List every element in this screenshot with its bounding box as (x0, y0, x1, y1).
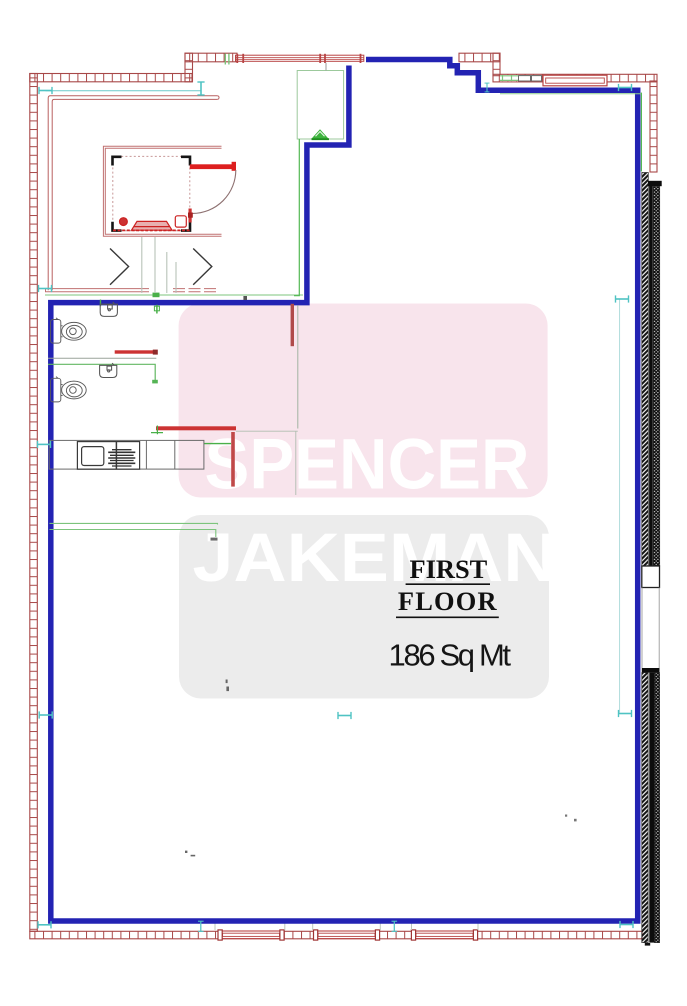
svg-text:JAKEMAN: JAKEMAN (193, 519, 557, 596)
svg-text:FLOOR: FLOOR (398, 586, 498, 616)
svg-text:SPENCER: SPENCER (205, 426, 530, 505)
svg-text:FIRST: FIRST (410, 554, 488, 584)
svg-text:186 Sq Mt: 186 Sq Mt (389, 638, 512, 673)
